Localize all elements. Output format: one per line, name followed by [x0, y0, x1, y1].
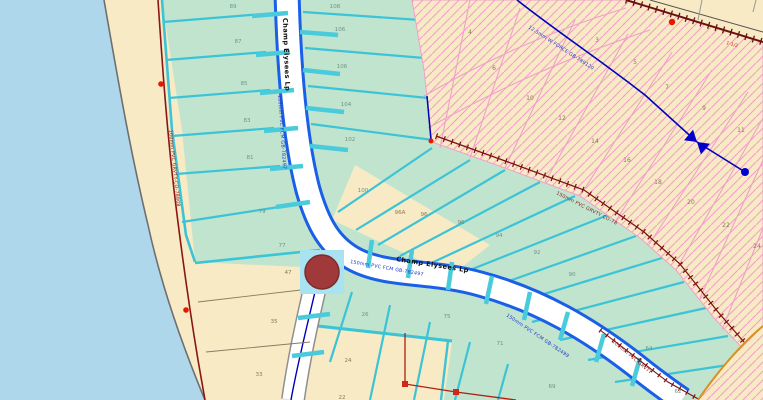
parcel-number: 77: [278, 243, 286, 249]
parcel-number: 81: [246, 155, 254, 161]
parcel-number: 3: [595, 37, 599, 44]
parcel-number: 14: [591, 138, 599, 145]
force-main-endpoint: [741, 168, 749, 176]
parcel-number: 24: [753, 243, 761, 250]
parcel-number: 85: [240, 81, 248, 87]
parcel-number: 11: [737, 127, 745, 134]
parcel-number: 10: [526, 95, 534, 102]
parcel-number: 5: [633, 59, 637, 66]
red-node-marker: [669, 19, 675, 25]
parcel-number: 20: [687, 199, 695, 206]
parcel-number: 16: [623, 157, 631, 164]
parcel-number: 96: [420, 212, 428, 218]
parcel-number: 104: [341, 102, 352, 108]
parcel-number: 87: [234, 39, 242, 45]
parcel-number: 89: [229, 4, 237, 10]
parcel-number: 90: [568, 272, 576, 278]
parcel-number: 108: [330, 4, 341, 10]
parcel-number: 9: [702, 105, 706, 112]
parcel-number: 106: [337, 64, 348, 70]
parcel-number: 35: [270, 319, 278, 325]
parcel-number: 75: [443, 314, 451, 320]
parcel-number: 62: [674, 389, 681, 395]
parcel-number: 12: [558, 115, 566, 122]
parcel-number: 69: [548, 384, 556, 390]
parcel-number: 71: [496, 341, 504, 347]
parcel-number: 79: [258, 209, 266, 215]
parcel-number: 33: [255, 372, 263, 378]
parcel-number: 83: [243, 118, 251, 124]
selected-point-marker[interactable]: [305, 255, 339, 289]
parcel-number: 94: [495, 233, 503, 239]
parcel-number: 26: [361, 312, 369, 318]
parcel-number: 102: [345, 137, 356, 143]
parcel-number: 7: [665, 84, 669, 91]
parcel-number: 18: [654, 179, 662, 186]
parcel-number: 96: [457, 220, 465, 226]
parcel-number: 96A: [395, 210, 406, 216]
parcel-number: 47: [284, 270, 292, 276]
gis-map-viewport[interactable]: Champ Elysees Lp Champ Elysees Lp 100mm …: [0, 0, 763, 400]
parcel-number: 6: [492, 65, 496, 72]
parcel-number: 64: [645, 346, 653, 352]
parcel-number: 106: [335, 27, 346, 33]
parcel-number: 92: [533, 250, 540, 256]
parcel-number: 100: [358, 188, 369, 194]
map-canvas[interactable]: Champ Elysees Lp Champ Elysees Lp 100mm …: [0, 0, 763, 400]
parcel-number: 4: [468, 29, 472, 36]
parcel-number: 24: [344, 358, 352, 364]
parcel-number: 22: [338, 395, 345, 400]
parcel-number: 22: [722, 222, 730, 229]
